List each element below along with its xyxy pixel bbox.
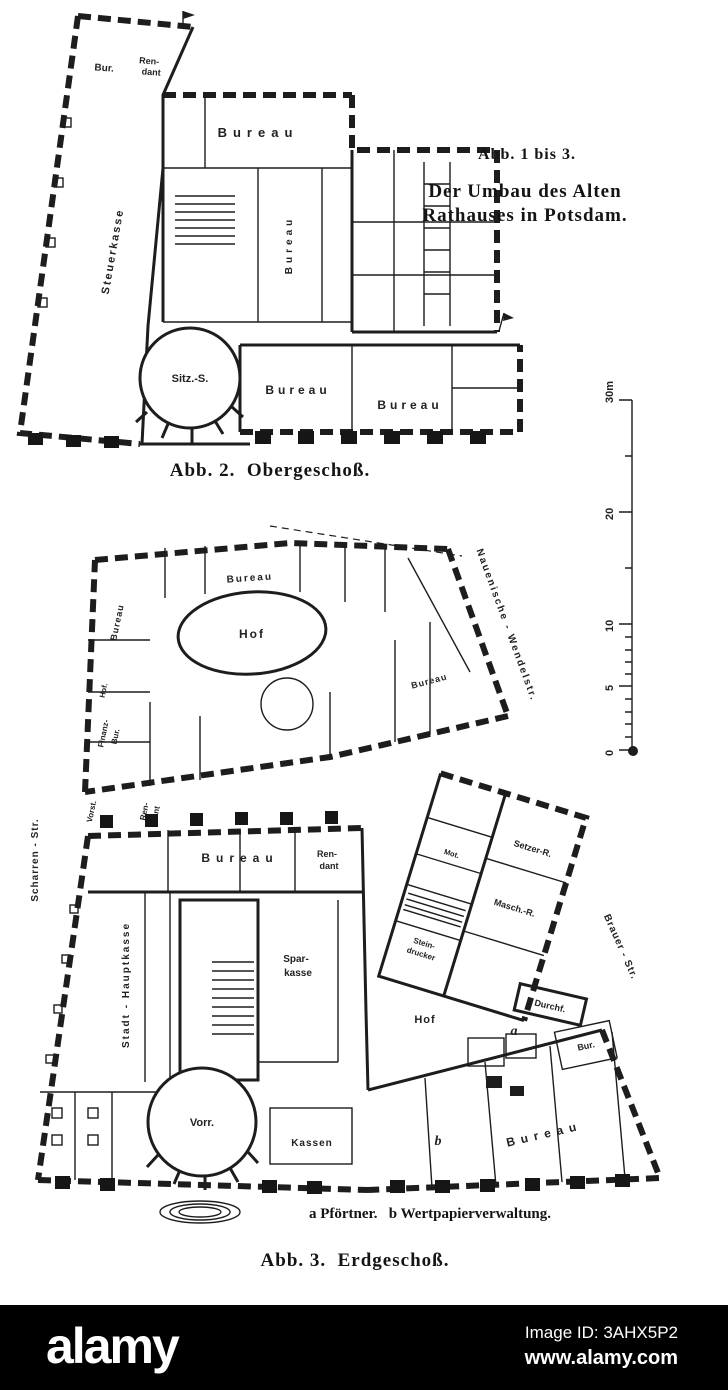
room-label-rendant: dant xyxy=(320,861,339,871)
pier xyxy=(28,433,43,445)
plan-erdgeschoss: Setzer-R. Masch.-R. Mot. Stein- drucker … xyxy=(30,773,660,1223)
room-label-hauptkasse: Stadt - Hauptkasse xyxy=(121,922,132,1048)
pier xyxy=(55,1176,70,1189)
scale-ticks xyxy=(619,400,632,750)
pier xyxy=(486,1076,502,1088)
caption-legend-ab: a Pförtner. b Wertpapierverwaltung. xyxy=(250,1206,610,1223)
pier xyxy=(255,431,271,444)
scale-label-5: 5 xyxy=(604,685,616,691)
room-label-vorraum: Vorr. xyxy=(190,1117,214,1129)
stair-hall xyxy=(180,900,258,1080)
window xyxy=(52,1135,62,1145)
flag-marker-icon xyxy=(183,11,195,19)
pier xyxy=(570,1176,585,1189)
wall xyxy=(38,836,88,1180)
scale-bar: 30m 20 10 5 0 xyxy=(604,381,638,756)
pier xyxy=(525,1178,540,1191)
wall xyxy=(85,560,95,792)
room-label-durchfahrt: Durchf. xyxy=(534,998,567,1015)
scale-label-30: 30m xyxy=(604,381,616,403)
pier xyxy=(480,1179,495,1192)
room-label-bureau: Bureau xyxy=(218,125,299,140)
wall xyxy=(85,716,508,792)
room-label-sitzungssaal: Sitz.-S. xyxy=(172,373,209,385)
room-label-bureau: Bureau xyxy=(201,851,278,865)
room-label-masch: Masch.-R. xyxy=(493,897,537,919)
pier xyxy=(190,813,203,826)
entrance-steps xyxy=(179,1207,221,1217)
wall xyxy=(368,1030,602,1090)
kassen-room xyxy=(270,1108,352,1164)
room-label-bureau: Bureau xyxy=(265,383,330,397)
pier xyxy=(280,812,293,825)
pier xyxy=(100,1178,115,1191)
room-label-bureau: Bureau xyxy=(505,1119,584,1150)
wall xyxy=(448,549,508,716)
pier xyxy=(390,1180,405,1193)
pier xyxy=(298,431,314,444)
figure-title-line3: Rathauses in Potsdam. xyxy=(390,204,660,228)
wall xyxy=(78,16,193,27)
legend-marker-a: a xyxy=(511,1024,518,1039)
window xyxy=(52,1108,62,1118)
legend-marker-b: b xyxy=(435,1134,442,1149)
window xyxy=(88,1108,98,1118)
street-label-wendelstrasse: Nauenische - Wendelstr. xyxy=(474,547,540,702)
pier xyxy=(145,814,158,827)
pier xyxy=(325,811,338,824)
scale-label-0: 0 xyxy=(604,750,616,756)
caption-obergeschoss: Abb. 2. Obergeschoß. xyxy=(140,460,400,482)
pier xyxy=(66,435,81,447)
bur-room: Bur. xyxy=(554,1021,617,1070)
pier xyxy=(435,1180,450,1193)
room-label-bureau: Bureau xyxy=(377,398,442,412)
courtyard-label-hof: Hof xyxy=(239,627,265,641)
figure-title-line1: Abb. 1 bis 3. xyxy=(398,146,656,164)
window xyxy=(88,1135,98,1145)
pier xyxy=(510,1086,524,1096)
alamy-watermark-bar: alamy Image ID: 3AHX5P2 www.alamy.com xyxy=(0,1305,728,1390)
annex-printshop: Setzer-R. Masch.-R. Mot. Stein- drucker xyxy=(379,773,586,1020)
wall xyxy=(379,773,586,1020)
pier xyxy=(341,431,357,444)
plan-obergeschoss: Bur. Ren- dant Bureau Steuerkasse Bureau… xyxy=(20,11,520,448)
scale-end xyxy=(628,746,638,756)
room-label-mot: Mot. xyxy=(443,847,460,860)
room-label-bur: Bur. xyxy=(576,1039,595,1052)
room-label-bur: Bur. xyxy=(94,62,114,74)
pier xyxy=(384,431,400,444)
wall xyxy=(88,828,362,836)
pier xyxy=(104,436,119,448)
room-label-bureau: Bureau xyxy=(410,671,448,690)
scale-label-20: 20 xyxy=(604,508,616,520)
courtyard-label-hof: Hof xyxy=(414,1014,435,1026)
pier xyxy=(307,1181,322,1194)
pier xyxy=(470,431,486,444)
pier xyxy=(235,812,248,825)
alamy-image-id: Image ID: 3AHX5P2 xyxy=(525,1321,678,1345)
wall xyxy=(362,828,368,1090)
room-label-sparkasse: kasse xyxy=(284,968,312,979)
scale-label-10: 10 xyxy=(604,620,616,632)
stair-rotunda xyxy=(261,678,313,730)
room-label-rendant: Ren- xyxy=(139,55,160,66)
alamy-logo: alamy xyxy=(46,1317,178,1375)
room-label-bureau-vertical: Bureau xyxy=(108,603,125,641)
alamy-url: www.alamy.com xyxy=(525,1345,678,1371)
room-label-setzer: Setzer-R. xyxy=(513,838,553,859)
room-label-rendant: Ren- xyxy=(317,849,337,859)
wall xyxy=(163,27,193,322)
room-label-rendant: dant xyxy=(141,66,161,77)
alamy-info: Image ID: 3AHX5P2 www.alamy.com xyxy=(525,1321,678,1371)
caption-erdgeschoss: Abb. 3. Erdgeschoß. xyxy=(225,1250,485,1272)
room-label-steuerkasse: Steuerkasse xyxy=(100,208,127,296)
room-label-vorst: Vorst. xyxy=(85,800,98,823)
figure-title-line2: Der Umbau des Alten xyxy=(390,180,660,204)
street-label-scharrenstrasse: Scharren - Str. xyxy=(30,818,41,901)
pier xyxy=(100,815,113,828)
room-label-sparkasse: Spar- xyxy=(283,954,309,965)
room-label-bureau: Bureau xyxy=(226,571,273,585)
pier xyxy=(262,1180,277,1193)
scanned-floorplan-page: Bur. Ren- dant Bureau Steuerkasse Bureau… xyxy=(0,0,728,1390)
wall xyxy=(444,793,506,996)
room-label-bureau-vertical: Bureau xyxy=(284,216,295,274)
pier xyxy=(427,431,443,444)
pier xyxy=(615,1174,630,1187)
room-label-hof-small: Hof. xyxy=(98,682,110,698)
street-label-brauerstrasse: Brauer - Str. xyxy=(601,913,640,982)
flag-marker-icon xyxy=(503,313,514,321)
plan-zwischengeschoss: Bureau Bureau Hof Hof. Finanz- Bur. Bure… xyxy=(85,526,539,824)
room-label-kassen: Kassen xyxy=(291,1138,333,1149)
